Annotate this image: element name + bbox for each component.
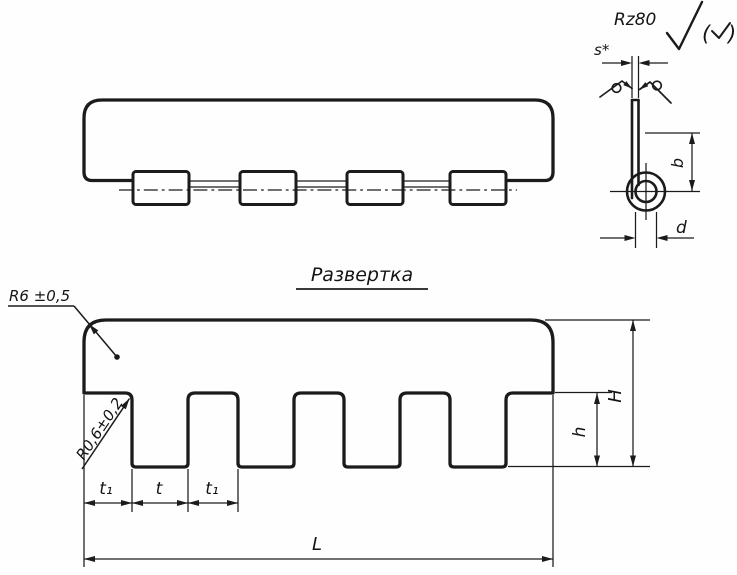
dim-tooth-height-group: h bbox=[570, 393, 600, 467]
knuckle-section-view: s* b d bbox=[594, 41, 700, 248]
arrowhead bbox=[625, 235, 636, 241]
development-view: Развертка R6 ±0,5 R0,6±0,2 bbox=[8, 264, 650, 567]
slot-radius-label: R0,6±0,2 bbox=[72, 395, 126, 464]
dim-pitch-group: t₁ t t₁ bbox=[84, 479, 238, 506]
dim-h-label: h bbox=[570, 427, 590, 438]
development-title: Развертка bbox=[311, 264, 413, 286]
dim-total-height-group: H bbox=[605, 320, 636, 467]
knuckle-rect bbox=[450, 172, 506, 205]
arrowhead bbox=[657, 235, 668, 241]
corner-radius-leader: R6 ±0,5 bbox=[8, 287, 120, 360]
arrowhead bbox=[639, 60, 650, 66]
arrowhead bbox=[689, 133, 695, 144]
leader-dot bbox=[114, 354, 120, 360]
knuckle-rect bbox=[347, 172, 403, 205]
dim-length-group: L bbox=[84, 534, 553, 562]
slot-radius-leader: R0,6±0,2 bbox=[72, 395, 132, 469]
corner-radius-label: R6 ±0,5 bbox=[9, 287, 70, 305]
paren-close-label: ) bbox=[726, 22, 736, 46]
paren-open-label: ( bbox=[702, 22, 711, 46]
leaf-body-outline bbox=[84, 100, 553, 181]
diameter-dim-label: d bbox=[676, 218, 687, 238]
knuckle-rect bbox=[133, 172, 189, 205]
development-outline bbox=[84, 320, 553, 467]
knuckle-rect bbox=[240, 172, 296, 205]
arrowhead bbox=[689, 180, 695, 191]
dim-t1-left-label: t₁ bbox=[99, 479, 112, 499]
thickness-dim-label: s* bbox=[594, 41, 610, 59]
hinge-technical-drawing: Rz80 ( ) s* bbox=[0, 0, 737, 575]
rz-value-label: Rz80 bbox=[614, 10, 656, 30]
dim-H-label: H bbox=[605, 389, 626, 403]
roughness-check-icon bbox=[667, 2, 702, 49]
formed-part-side-view bbox=[84, 100, 553, 205]
height-dim-label: b bbox=[668, 158, 687, 168]
dim-L-label: L bbox=[312, 534, 322, 555]
surface-finish-note: Rz80 ( ) bbox=[614, 2, 736, 49]
no-removal-roughness-icon bbox=[638, 81, 671, 103]
dim-t1-right-label: t₁ bbox=[205, 479, 218, 499]
no-removal-roughness-icon bbox=[600, 81, 634, 97]
technical-drawing-sheet: Rz80 ( ) s* bbox=[0, 0, 737, 575]
dim-t-label: t bbox=[156, 479, 164, 499]
arrowhead bbox=[621, 60, 632, 66]
